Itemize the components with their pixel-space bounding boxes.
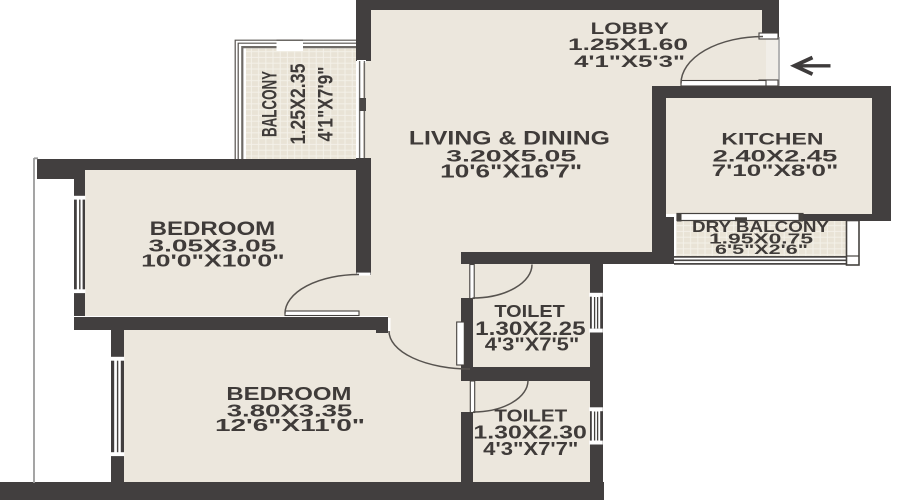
svg-text:4'1"X5'3": 4'1"X5'3" bbox=[574, 53, 685, 71]
svg-text:6'5"X2'6": 6'5"X2'6" bbox=[715, 241, 808, 257]
svg-text:BALCONY: BALCONY bbox=[258, 71, 282, 137]
svg-text:KITCHEN: KITCHEN bbox=[721, 131, 823, 149]
svg-text:7'10"X8'0": 7'10"X8'0" bbox=[712, 162, 839, 180]
svg-text:TOILET: TOILET bbox=[494, 301, 565, 321]
svg-text:4'3"X7'5": 4'3"X7'5" bbox=[485, 334, 579, 354]
svg-text:12'6"X11'0": 12'6"X11'0" bbox=[215, 415, 365, 435]
svg-text:10'6"X16'7": 10'6"X16'7" bbox=[440, 160, 582, 181]
svg-text:4'1"X7'9": 4'1"X7'9" bbox=[314, 67, 338, 142]
svg-text:1.25X1.60: 1.25X1.60 bbox=[568, 36, 688, 54]
svg-text:10'0"X10'0": 10'0"X10'0" bbox=[141, 251, 285, 271]
svg-text:1.25X2.35: 1.25X2.35 bbox=[286, 63, 310, 144]
svg-text:4'3"X7'7": 4'3"X7'7" bbox=[483, 439, 578, 459]
